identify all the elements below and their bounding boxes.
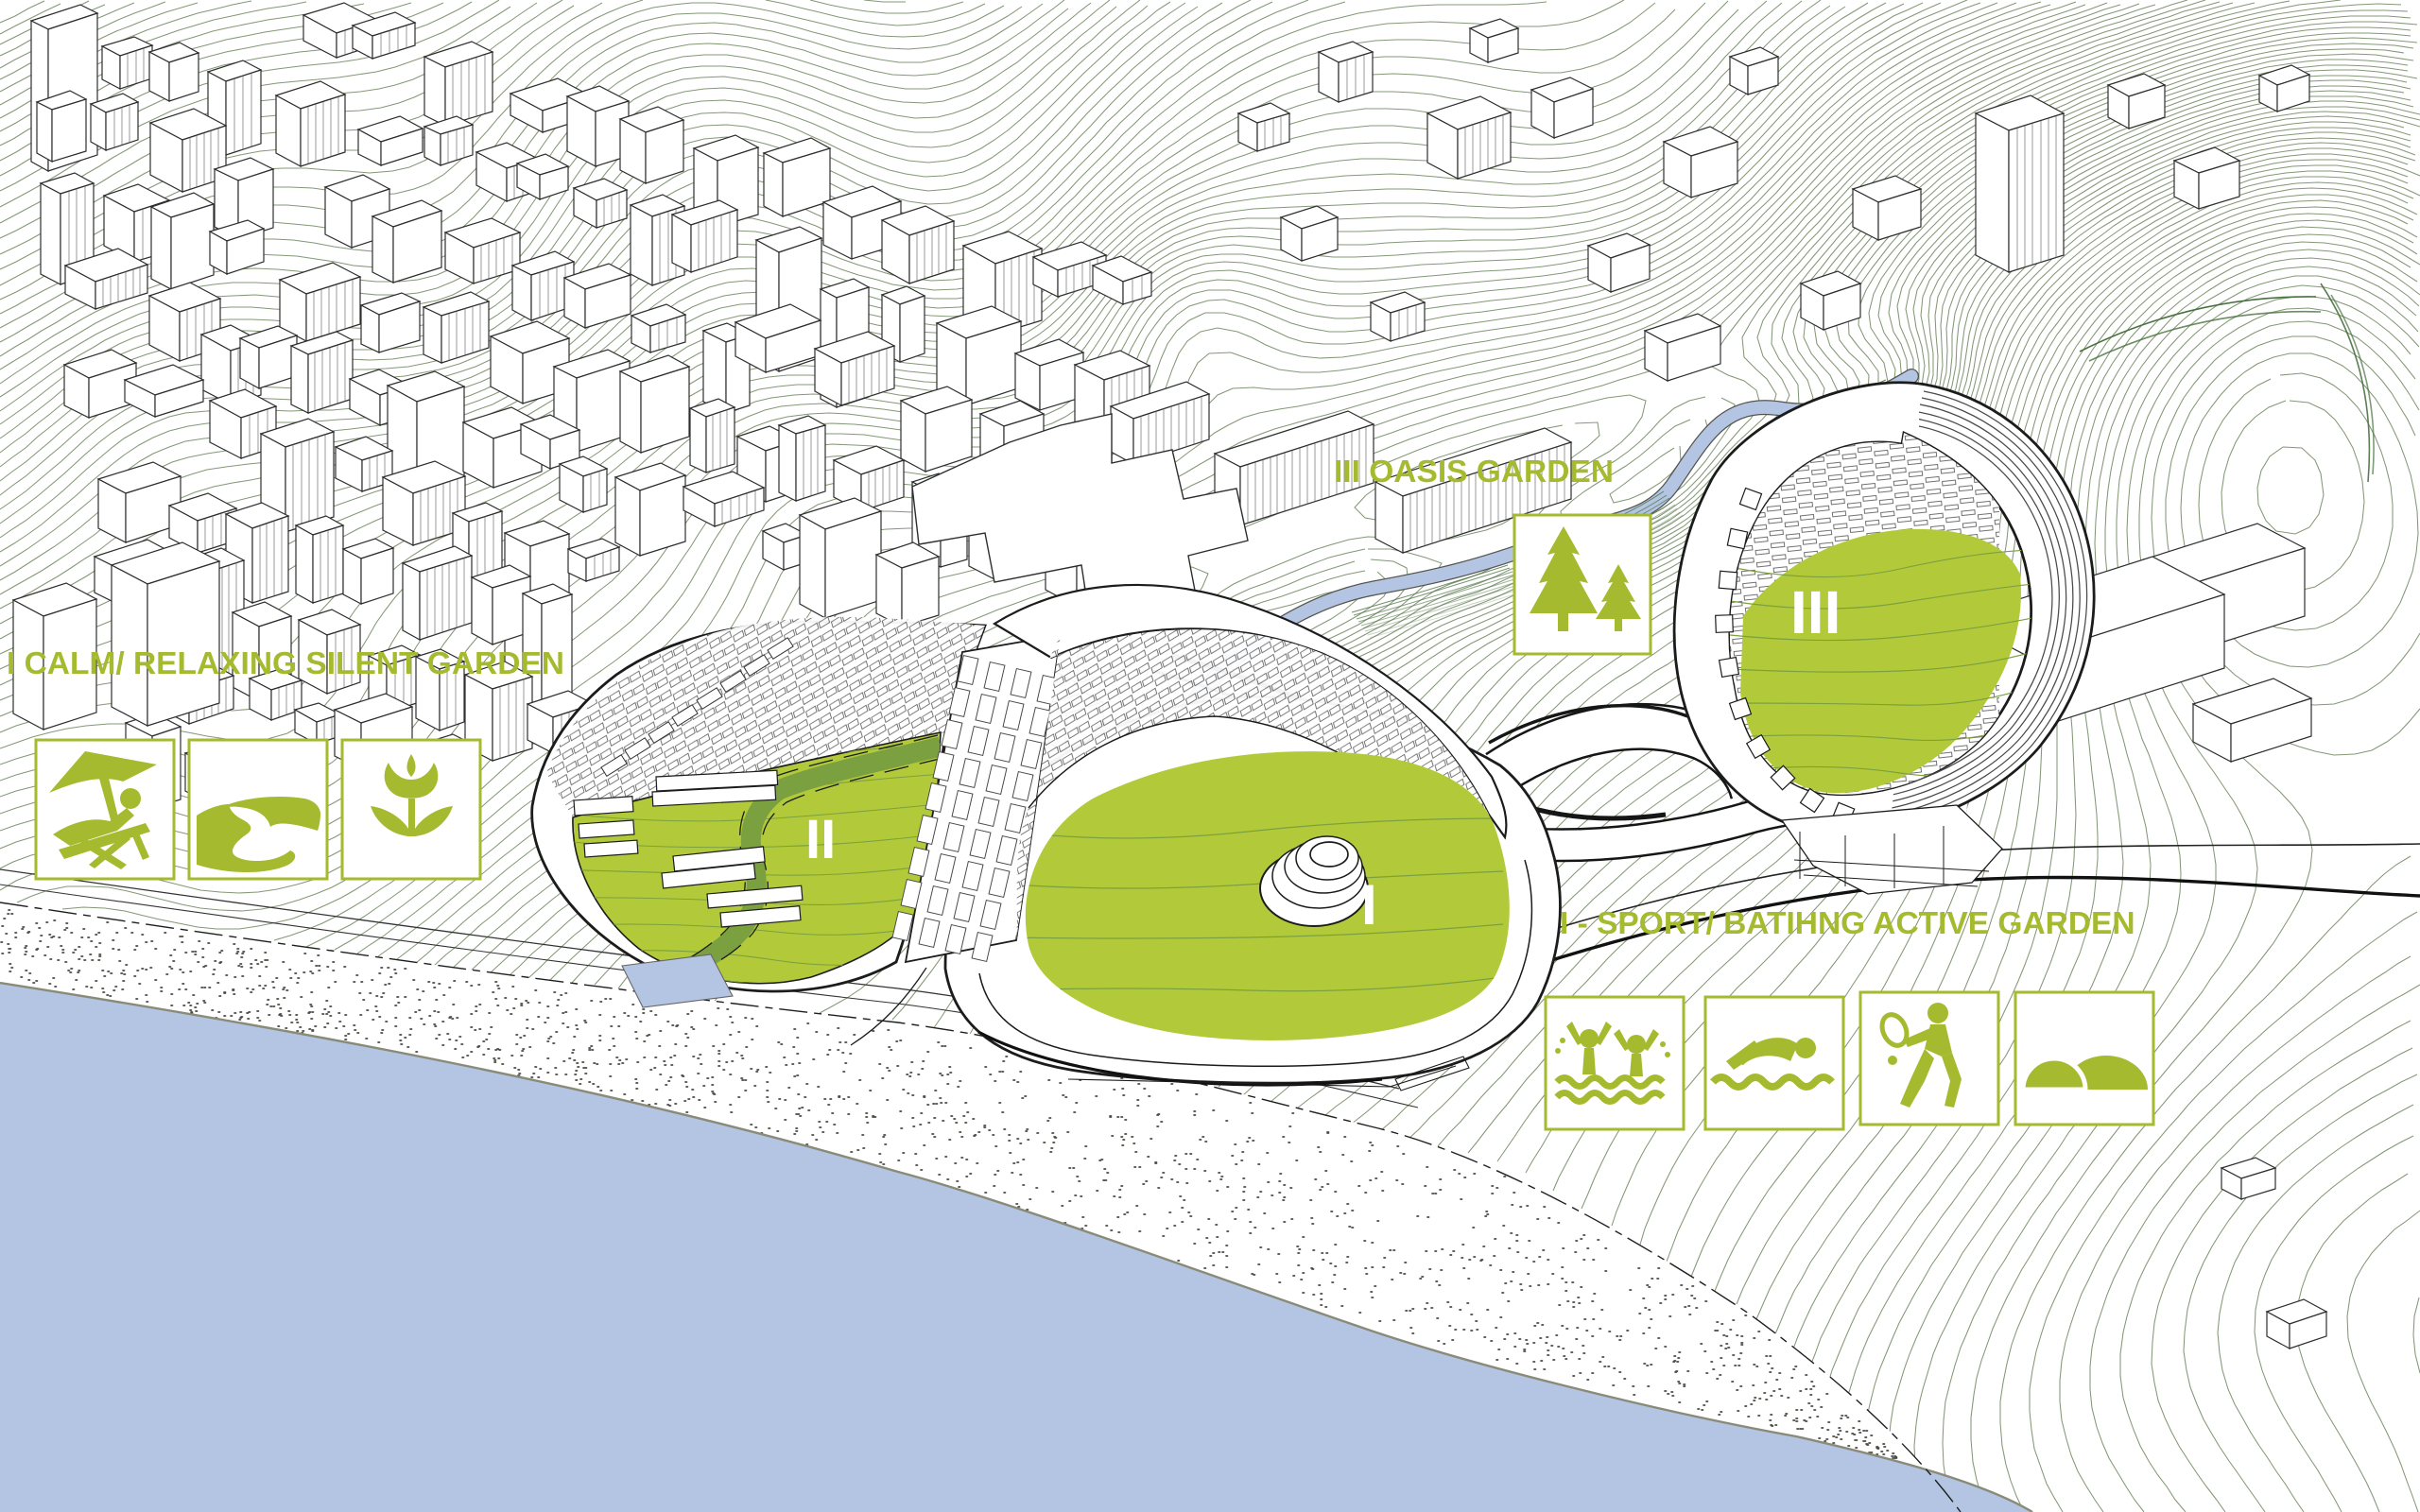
svg-text:I - SPORT/ BATIHNG ACTIVE GARD: I - SPORT/ BATIHNG ACTIVE GARDEN [1560,906,2135,941]
svg-text:I: I [1361,873,1377,936]
svg-text:II: II [805,809,836,870]
svg-text:III OASIS GARDEN: III OASIS GARDEN [1334,455,1614,490]
svg-text:III: III [1790,578,1841,646]
svg-text:I CALM/ RELAXING SILENT GARDEN: I CALM/ RELAXING SILENT GARDEN [7,646,564,681]
